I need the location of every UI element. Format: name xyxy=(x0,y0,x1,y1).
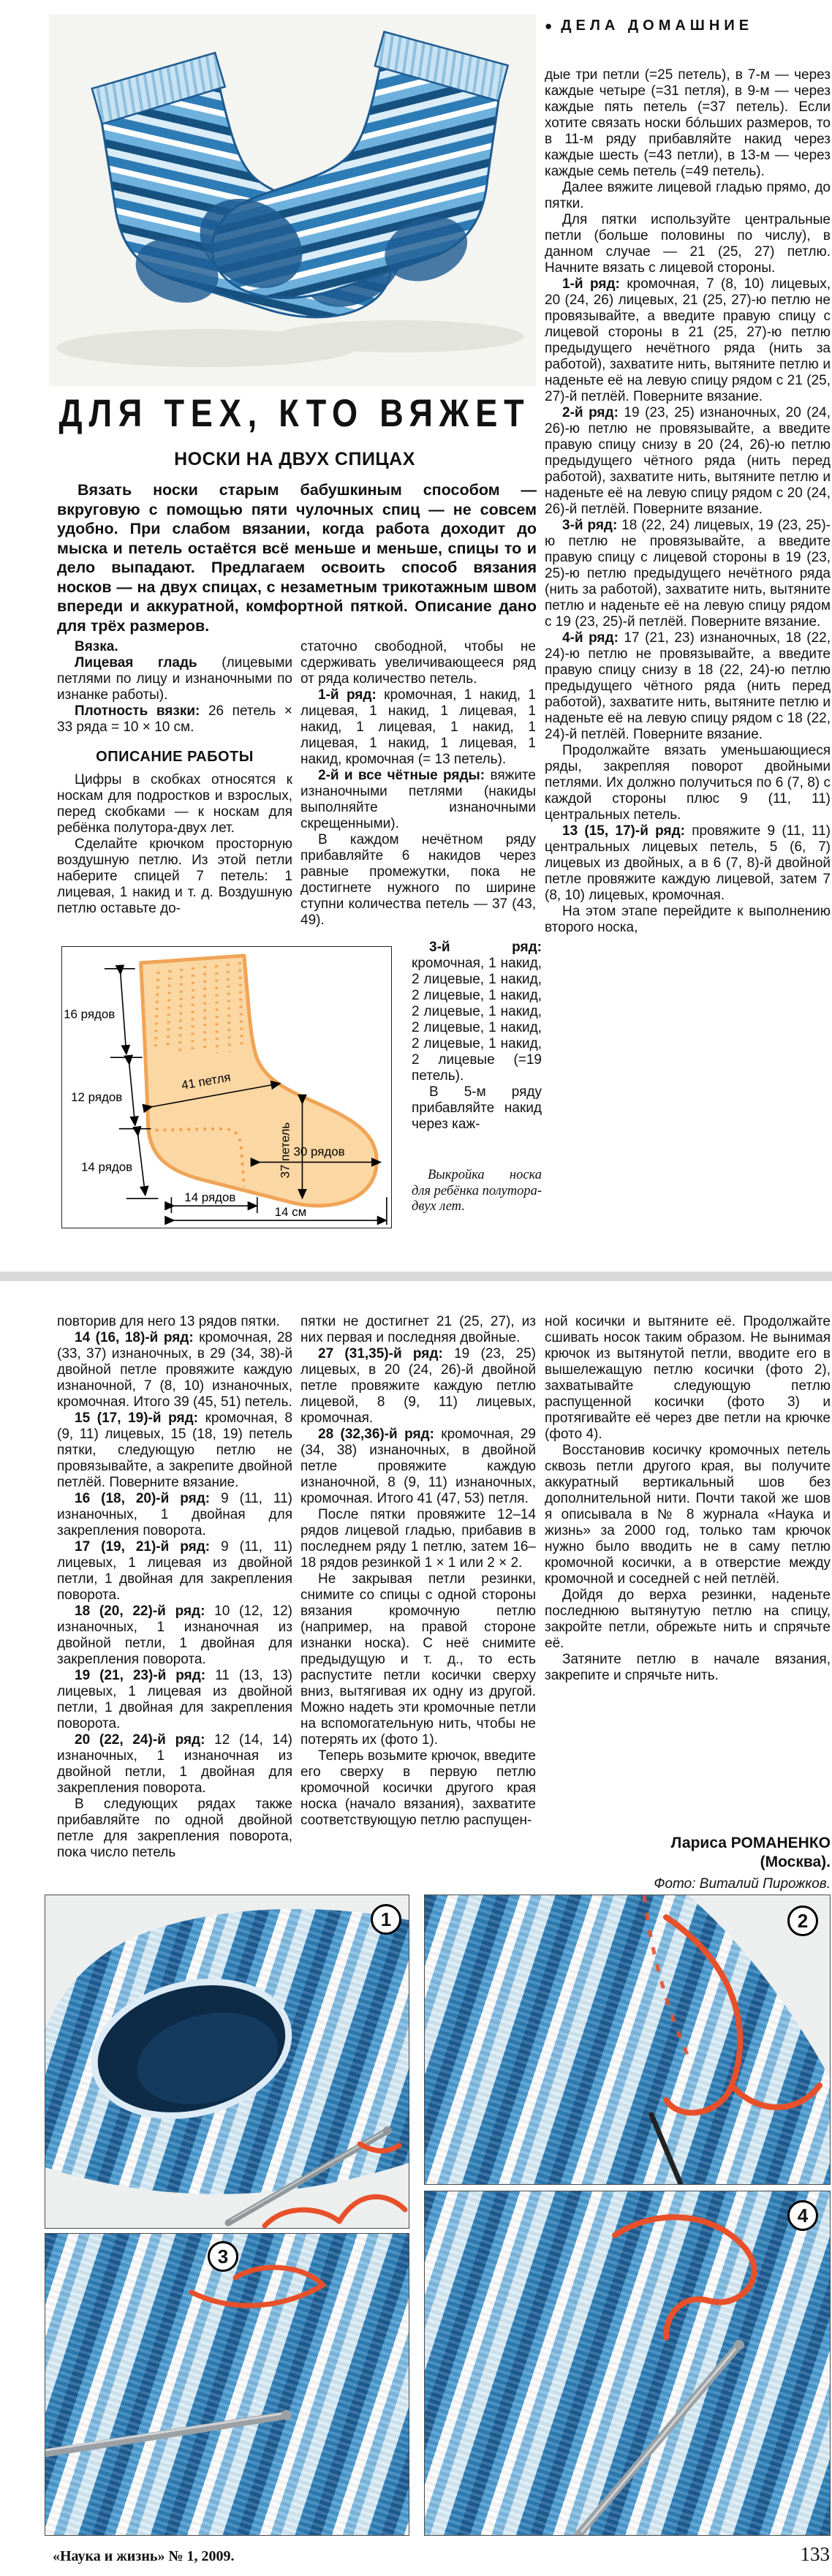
diagram-label-rows12: 12 рядов xyxy=(71,1090,122,1104)
lower-column-right: ной косички и вытяните её. Продолжайте с… xyxy=(545,1314,831,1684)
photo-number-badge: 3 xyxy=(208,2241,238,2272)
photo3-overlay xyxy=(45,2234,409,2535)
article-subtitle: НОСКИ НА ДВУХ СПИЦАХ xyxy=(53,449,537,470)
page-title: ДЛЯ ТЕХ, КТО ВЯЖЕТ xyxy=(58,390,532,436)
paragraph: 4-й ряд: 17 (21, 23) изнаночных, 18 (22,… xyxy=(545,630,831,743)
column-middle-narrow: 3-й ряд: кромочная, 1 накид, 2 лицевые, … xyxy=(412,940,542,1133)
paragraph-lead: 3-й ряд: xyxy=(429,940,542,955)
section-header-label: ДЕЛА ДОМАШНИЕ xyxy=(561,18,753,34)
paragraph: повторив для него 13 рядов пятки. xyxy=(57,1314,292,1330)
knitting-needle-icon xyxy=(578,2340,744,2535)
paragraph: 3-й ряд: 18 (22, 24) лицевых, 19 (23, 25… xyxy=(545,518,831,630)
diagram-label-loops37: 37 петель xyxy=(279,1122,292,1179)
paragraph: 28 (32,36)-й ряд: кромочная, 29 (34, 38)… xyxy=(300,1427,536,1507)
paragraph: 27 (31,35)-й ряд: 19 (23, 25) лицевых, в… xyxy=(300,1346,536,1427)
author-block: Лариса РОМАНЕНКО (Москва). Фото: Виталий… xyxy=(545,1834,831,1894)
diagram-caption: Выкройка носка для ребёнка полутора-двух… xyxy=(412,1168,542,1215)
paragraph-lead: 17 (19, 21)-й ряд: xyxy=(75,1539,210,1555)
author-name: Лариса РОМАНЕНКО xyxy=(545,1834,831,1853)
needle-tip-icon xyxy=(651,2115,681,2184)
paragraph-lead: 16 (18, 20)-й ряд: xyxy=(75,1491,210,1506)
process-photo-3: 3 xyxy=(45,2234,409,2535)
paragraph-lead: 20 (22, 24)-й ряд: xyxy=(75,1732,205,1748)
journal-imprint: «Наука и жизнь» № 1, 2009. xyxy=(53,2548,235,2565)
column-middle: статочно свободной, чтобы не сдерживать … xyxy=(300,639,536,929)
paragraph-lead: Вязка. xyxy=(75,639,118,654)
paragraph-lead: 19 (21, 23)-й ряд: xyxy=(75,1668,205,1683)
paragraph-lead: 28 (32,36)-й ряд: xyxy=(318,1427,434,1442)
process-photo-2: 2 xyxy=(425,1895,830,2184)
paragraph-lead: 18 (20, 22)-й ряд: xyxy=(75,1604,205,1619)
paragraph: Сделайте крючком просторную воздушную пе… xyxy=(57,836,292,917)
socks-photo xyxy=(49,15,536,386)
paragraph: пятки не достигнет 21 (25, 27), из них п… xyxy=(300,1314,536,1346)
paragraph: В 5-м ряду прибавляйте накид через каж- xyxy=(412,1084,542,1133)
paragraph-lead: 4-й ряд: xyxy=(562,630,619,646)
paragraph: 1-й ряд: кромочная, 7 (8, 10) лицевых, 2… xyxy=(545,276,831,405)
diagram-label-rows14-left: 14 рядов xyxy=(81,1160,132,1174)
lower-column-middle: пятки не достигнет 21 (25, 27), из них п… xyxy=(300,1314,536,1829)
photo-credit: Фото: Виталий Пирожков. xyxy=(545,1875,831,1894)
orange-thread-icon xyxy=(192,2267,323,2305)
sock-pattern-drawing: 16 рядов 12 рядов 14 рядов 41 петля 37 п… xyxy=(62,947,391,1228)
paragraph: 3-й ряд: кромочная, 1 накид, 2 лицевые, … xyxy=(412,940,542,1084)
paragraph: Для пятки используйте центральные петли … xyxy=(545,212,831,276)
paragraph: Лицевая гладь (лицевыми петлями по лицу … xyxy=(57,655,292,703)
paragraph-lead: 1-й ряд: xyxy=(562,276,620,292)
bullet-icon: ● xyxy=(545,19,552,34)
paragraph: В следующих рядах также прибавляйте по о… xyxy=(57,1797,292,1861)
diagram-label-rows30: 30 рядов xyxy=(294,1145,345,1159)
sock-outline xyxy=(141,956,377,1206)
paragraph: 20 (22, 24)-й ряд: 12 (14, 14) изнаночны… xyxy=(57,1732,292,1797)
magazine-page: ● ДЕЛА ДОМАШНИЕ xyxy=(0,0,832,2576)
process-photo-4: 4 xyxy=(425,2191,830,2535)
lower-column-left: повторив для него 13 рядов пятки.14 (16,… xyxy=(57,1314,292,1861)
paragraph: 14 (16, 18)-й ряд: кромочная, 28 (33, 37… xyxy=(57,1330,292,1410)
diagram-label-rows16: 16 рядов xyxy=(64,1007,115,1021)
paragraph: Теперь возьмите крючок, введите его свер… xyxy=(300,1748,536,1829)
paragraph: Не закрывая петли резинки, снимите со сп… xyxy=(300,1571,536,1748)
paragraph: В каждом нечётном ряду прибавляйте 6 нак… xyxy=(300,832,536,929)
pattern-diagram: 16 рядов 12 рядов 14 рядов 41 петля 37 п… xyxy=(61,946,392,1228)
paragraph: 2-й ряд: 19 (23, 25) изнаночных, 20 (24,… xyxy=(545,405,831,518)
paragraph: 2-й и все чётные ряды: вяжите изнаночным… xyxy=(300,768,536,832)
photo-number-badge: 1 xyxy=(371,1904,401,1935)
paragraph: ной косички и вытяните её. Продолжайте с… xyxy=(545,1314,831,1443)
paragraph-lead: 3-й ряд: xyxy=(562,518,617,533)
diagram-label-rows14-bottom: 14 рядов xyxy=(184,1190,235,1204)
paragraph: 13 (15, 17)-й ряд: провяжите 9 (11, 11) … xyxy=(545,823,831,904)
paragraph: Дойдя до верха резинки, наденьте последн… xyxy=(545,1587,831,1652)
diagram-label-cm14: 14 см xyxy=(275,1205,307,1219)
knitting-needle-icon xyxy=(45,2410,292,2453)
paragraph-lead: 14 (16, 18)-й ряд: xyxy=(75,1330,194,1345)
paragraph: Затяните петлю в начале вязания, закрепи… xyxy=(545,1652,831,1684)
paragraph-lead: 1-й ряд: xyxy=(318,687,377,703)
sock-opening xyxy=(80,1963,303,2135)
orange-thread-icon xyxy=(615,2217,754,2338)
paragraph-lead: Плотность вязки: xyxy=(75,703,200,719)
paragraph: статочно свободной, чтобы не сдерживать … xyxy=(300,639,536,687)
paragraph: 16 (18, 20)-й ряд: 9 (11, 11) изнаночных… xyxy=(57,1491,292,1539)
paragraph: На этом этапе перейдите к выполнению вто… xyxy=(545,904,831,936)
paragraph: Вязка. xyxy=(57,639,292,655)
paragraph-lead: 27 (31,35)-й ряд: xyxy=(318,1346,443,1361)
photo4-overlay xyxy=(425,2191,830,2535)
page-footer: «Наука и жизнь» № 1, 2009. 133 xyxy=(53,2543,830,2566)
section-divider xyxy=(0,1272,832,1281)
paragraph: Плотность вязки: 26 петель × 33 ряда = 1… xyxy=(57,703,292,736)
paragraph: Продолжайте вязать уменьшающиеся ряды, з… xyxy=(545,743,831,823)
paragraph: Далее вяжите лицевой гладью прямо, до пя… xyxy=(545,180,831,212)
photo2-overlay xyxy=(425,1895,830,2184)
paragraph-lead: 13 (15, 17)-й ряд: xyxy=(562,823,685,839)
paragraph-lead: 2-й ряд: xyxy=(562,405,619,420)
paragraph: 19 (21, 23)-й ряд: 11 (13, 13) лицевых, … xyxy=(57,1668,292,1732)
author-city: (Москва). xyxy=(545,1853,831,1872)
section-header: ● ДЕЛА ДОМАШНИЕ xyxy=(545,18,831,34)
page-number: 133 xyxy=(801,2543,831,2566)
paragraph-lead: Лицевая гладь xyxy=(75,655,197,671)
process-photo-1: 1 xyxy=(45,1895,409,2228)
paragraph: 17 (19, 21)-й ряд: 9 (11, 11) лицевых, 1… xyxy=(57,1539,292,1604)
column-right: дые три петли (=25 петель), в 7-м — чере… xyxy=(545,67,831,936)
photo-number-badge: 4 xyxy=(787,2200,818,2231)
intro-paragraph: Вязать носки старым бабушкиным способом … xyxy=(57,480,537,635)
paragraph: Восстановив косичку кромочных петель скв… xyxy=(545,1443,831,1587)
paragraph: дые три петли (=25 петель), в 7-м — чере… xyxy=(545,67,831,180)
photo1-overlay xyxy=(45,1895,409,2228)
column-left: Вязка.Лицевая гладь (лицевыми петлями по… xyxy=(57,639,292,917)
socks-illustration xyxy=(49,15,536,386)
paragraph: После пятки провяжите 12–14 рядов лицево… xyxy=(300,1507,536,1571)
paragraph-lead: 15 (17, 19)-й ряд: xyxy=(75,1410,198,1426)
paragraph: 15 (17, 19)-й ряд: кромочная, 8 (9, 11) … xyxy=(57,1410,292,1491)
photo-number-badge: 2 xyxy=(787,1905,818,1936)
paragraph: 18 (20, 22)-й ряд: 10 (12, 12) изнаночны… xyxy=(57,1604,292,1668)
paragraph: Цифры в скобках относятся к носкам для п… xyxy=(57,772,292,836)
paragraph-lead: 2-й и все чётные ряды: xyxy=(318,768,485,783)
column-heading: ОПИСАНИЕ РАБОТЫ xyxy=(57,749,292,765)
paragraph: 1-й ряд: кромочная, 1 накид, 1 лицевая, … xyxy=(300,687,536,768)
